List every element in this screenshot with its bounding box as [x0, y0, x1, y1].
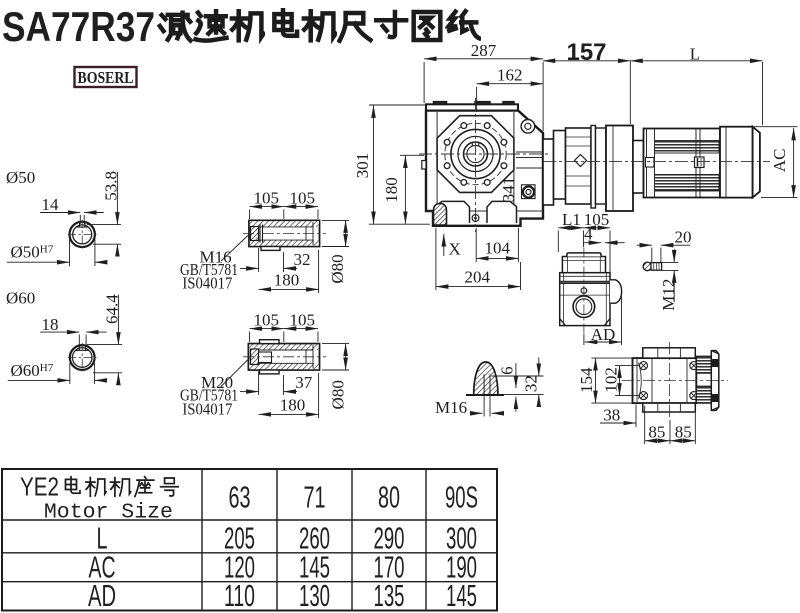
svg-text:105: 105 — [254, 310, 280, 329]
svg-text:85: 85 — [675, 423, 692, 442]
svg-text:Ø60: Ø60 — [6, 289, 35, 308]
svg-text:L: L — [690, 45, 700, 64]
svg-text:105: 105 — [254, 188, 280, 207]
svg-text:180: 180 — [382, 177, 401, 203]
svg-text:145: 145 — [446, 578, 477, 613]
svg-text:AD: AD — [591, 325, 616, 344]
svg-text:135: 135 — [374, 578, 405, 613]
svg-text:32: 32 — [522, 375, 541, 392]
svg-text:SA77R37: SA77R37 — [2, 3, 155, 50]
svg-text:37: 37 — [295, 373, 313, 392]
svg-text:X: X — [449, 240, 461, 259]
svg-text:80: 80 — [378, 479, 400, 514]
svg-text:IS04017: IS04017 — [182, 400, 232, 419]
svg-text:IS04017: IS04017 — [182, 274, 232, 293]
svg-text:BOSERL: BOSERL — [78, 68, 134, 87]
svg-text:M12: M12 — [659, 279, 678, 311]
svg-text:20: 20 — [675, 228, 692, 247]
svg-text:110: 110 — [224, 578, 255, 613]
svg-text:Motor Size: Motor Size — [44, 501, 173, 525]
svg-text:85: 85 — [648, 423, 665, 442]
svg-text:105: 105 — [290, 310, 316, 329]
svg-text:6: 6 — [498, 366, 517, 375]
svg-text:71: 71 — [304, 479, 326, 514]
svg-text:287: 287 — [471, 41, 497, 60]
svg-text:14: 14 — [42, 195, 60, 214]
svg-text:105: 105 — [290, 188, 316, 207]
svg-text:341: 341 — [499, 177, 518, 203]
svg-text:Ø80: Ø80 — [329, 380, 348, 409]
svg-text:301: 301 — [353, 153, 372, 179]
svg-text:M16: M16 — [435, 398, 467, 417]
svg-text:90S: 90S — [445, 479, 478, 514]
svg-text:YE2: YE2 — [20, 472, 59, 502]
svg-text:32: 32 — [294, 250, 311, 269]
svg-text:18: 18 — [42, 315, 59, 334]
svg-text:157: 157 — [566, 39, 606, 66]
svg-text:102: 102 — [602, 367, 621, 393]
svg-text:162: 162 — [497, 66, 523, 85]
svg-text:AC: AC — [770, 148, 789, 172]
svg-text:Ø80: Ø80 — [328, 254, 347, 283]
svg-text:AD: AD — [88, 578, 116, 613]
svg-text:L1: L1 — [562, 210, 581, 229]
svg-text:154: 154 — [577, 367, 596, 393]
svg-text:180: 180 — [274, 270, 300, 289]
svg-text:130: 130 — [299, 578, 330, 613]
svg-text:204: 204 — [464, 267, 490, 286]
svg-text:Ø50: Ø50 — [6, 168, 35, 187]
svg-text:38: 38 — [603, 405, 620, 424]
svg-text:4: 4 — [584, 224, 593, 243]
svg-text:63: 63 — [229, 479, 251, 514]
svg-text:180: 180 — [280, 395, 306, 414]
svg-text:104: 104 — [485, 238, 511, 257]
